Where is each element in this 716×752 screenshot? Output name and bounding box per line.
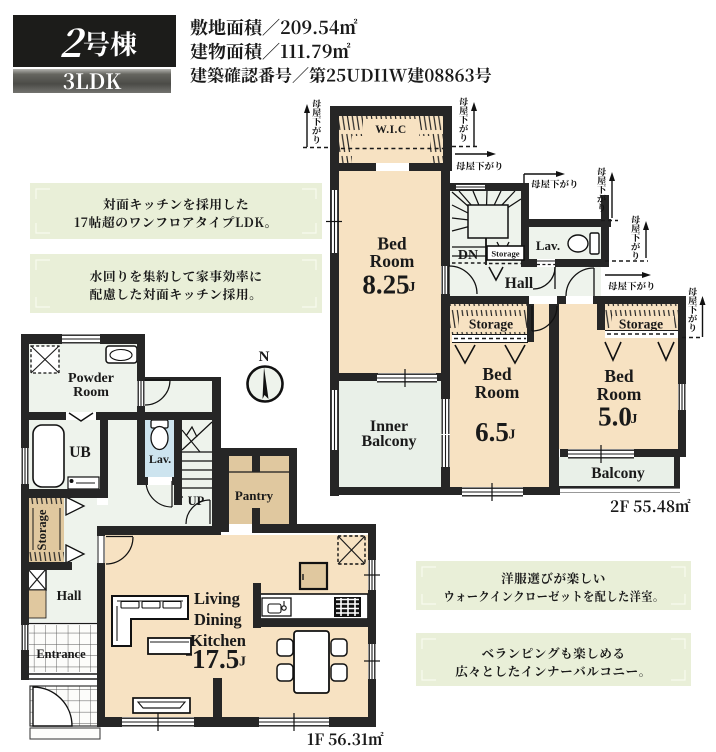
svg-text:Storage: Storage — [35, 509, 49, 550]
svg-text:J: J — [239, 655, 246, 670]
svg-text:UB: UB — [69, 444, 91, 461]
svg-text:Room: Room — [370, 251, 415, 271]
svg-text:W.I.C: W.I.C — [375, 124, 406, 136]
svg-text:Room: Room — [73, 385, 109, 400]
svg-text:Bed: Bed — [604, 366, 633, 386]
svg-text:Balcony: Balcony — [361, 433, 416, 450]
svg-text:Pantry: Pantry — [235, 488, 274, 503]
svg-text:J: J — [631, 412, 638, 427]
svg-text:Hall: Hall — [57, 588, 82, 603]
svg-text:Living: Living — [194, 589, 241, 608]
svg-text:Bed: Bed — [482, 364, 511, 384]
svg-text:DN: DN — [458, 248, 478, 263]
svg-text:Powder: Powder — [68, 371, 114, 386]
svg-text:5.0: 5.0 — [598, 402, 632, 432]
svg-text:Lav.: Lav. — [536, 238, 560, 253]
svg-text:Storage: Storage — [619, 317, 663, 332]
svg-text:N: N — [259, 349, 270, 365]
svg-text:Hall: Hall — [505, 275, 534, 292]
svg-text:Entrance: Entrance — [36, 647, 86, 661]
svg-text:Room: Room — [475, 382, 520, 402]
svg-text:J: J — [509, 428, 516, 443]
svg-text:Dining: Dining — [194, 610, 242, 629]
svg-text:6.5: 6.5 — [475, 417, 509, 447]
svg-text:Lav.: Lav. — [149, 452, 171, 466]
svg-text:Balcony: Balcony — [591, 465, 645, 482]
svg-text:8.25: 8.25 — [362, 270, 409, 300]
svg-text:17.5: 17.5 — [192, 644, 239, 674]
svg-text:Storage: Storage — [469, 317, 513, 332]
svg-text:Storage: Storage — [491, 249, 519, 259]
svg-text:J: J — [409, 280, 416, 295]
